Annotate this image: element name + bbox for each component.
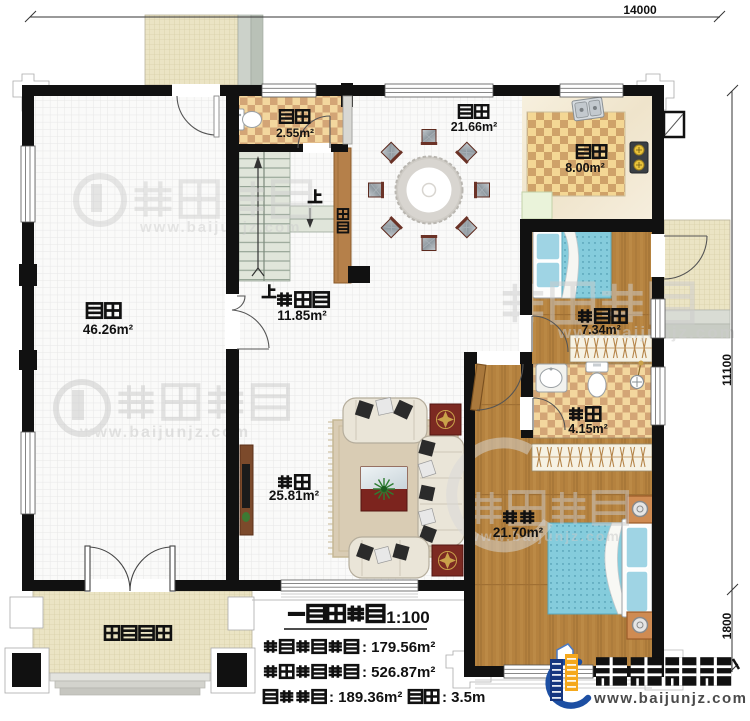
svg-text:14000: 14000	[623, 3, 657, 17]
svg-text:www.baijunjz.com: www.baijunjz.com	[593, 690, 747, 707]
svg-text:1800: 1800	[720, 612, 734, 639]
svg-text:46.26m²: 46.26m²	[83, 322, 134, 337]
svg-text:: 3.5m: : 3.5m	[442, 689, 485, 706]
svg-text:11100: 11100	[720, 354, 734, 386]
svg-text:21.70m²: 21.70m²	[493, 525, 544, 540]
svg-text:8.00m²: 8.00m²	[565, 161, 605, 175]
svg-text:: 189.36m²: : 189.36m²	[329, 689, 402, 706]
svg-text:11.85m²: 11.85m²	[277, 308, 327, 323]
svg-text:: 179.56m²: : 179.56m²	[362, 639, 435, 656]
svg-text:www.baijunjz.com: www.baijunjz.com	[79, 424, 250, 441]
svg-text:21.66m²: 21.66m²	[451, 120, 498, 134]
svg-text:25.81m²: 25.81m²	[269, 488, 320, 503]
svg-text:7.34m²: 7.34m²	[581, 323, 621, 337]
svg-text:1:100: 1:100	[386, 608, 429, 627]
svg-text:4.15m²: 4.15m²	[568, 422, 608, 436]
svg-text:www.baijunjz.com: www.baijunjz.com	[139, 219, 301, 236]
svg-text:: 526.87m²: : 526.87m²	[362, 664, 435, 681]
svg-text:2.55m²: 2.55m²	[276, 126, 314, 140]
